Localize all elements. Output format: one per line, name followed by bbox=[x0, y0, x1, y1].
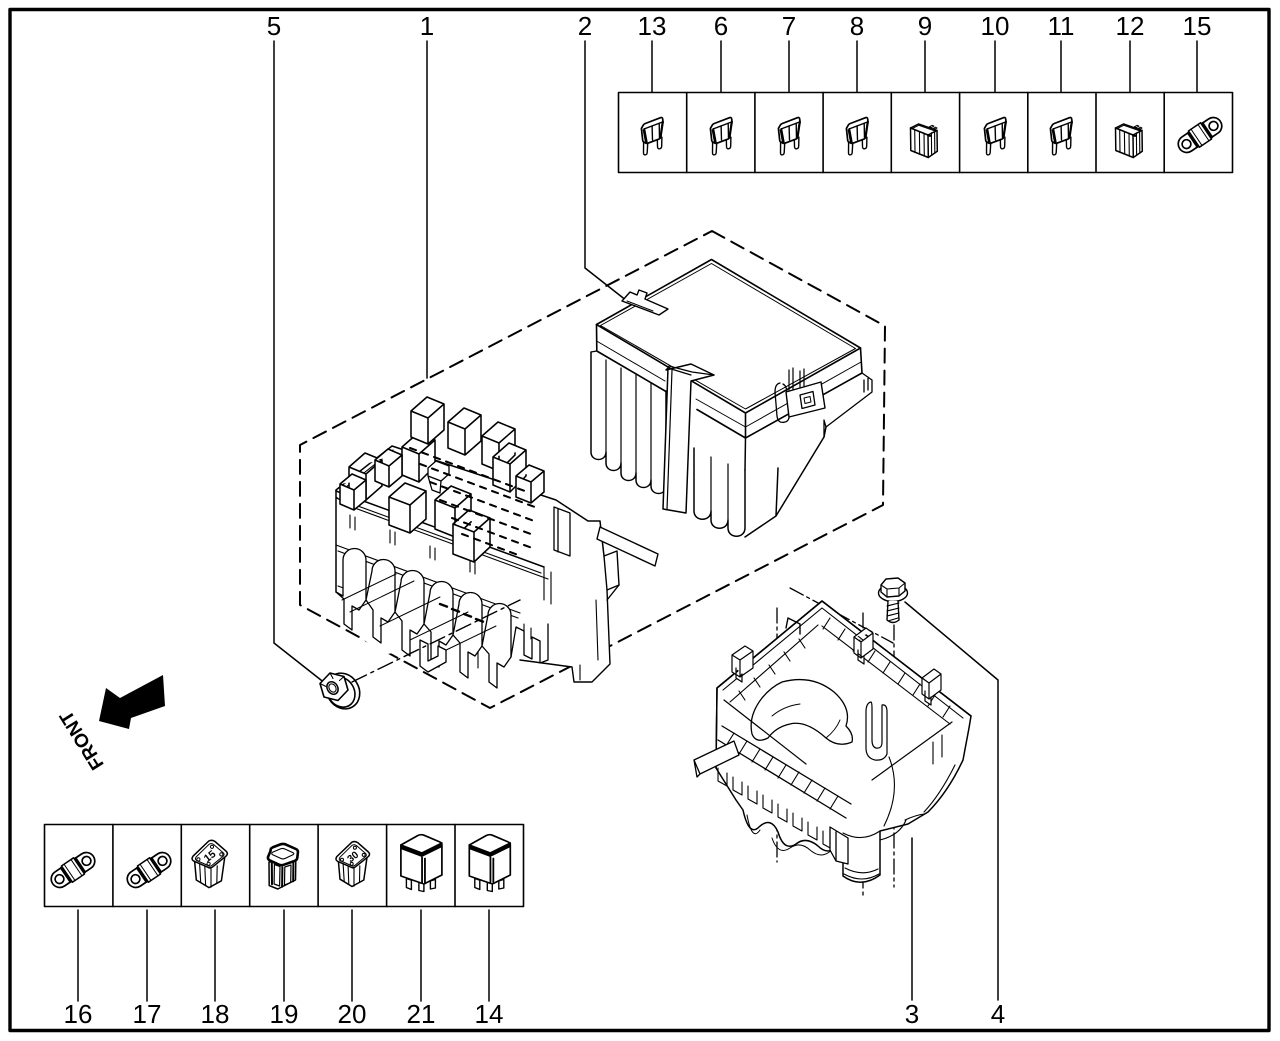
svg-text:3: 3 bbox=[905, 999, 919, 1029]
svg-text:18: 18 bbox=[201, 999, 230, 1029]
svg-text:9: 9 bbox=[918, 11, 932, 41]
svg-text:6: 6 bbox=[714, 11, 728, 41]
svg-text:19: 19 bbox=[270, 999, 299, 1029]
svg-text:5: 5 bbox=[267, 11, 281, 41]
svg-text:21: 21 bbox=[407, 999, 436, 1029]
svg-text:11: 11 bbox=[1048, 11, 1075, 41]
svg-text:7: 7 bbox=[782, 11, 796, 41]
svg-text:1: 1 bbox=[420, 11, 434, 41]
svg-text:17: 17 bbox=[133, 999, 162, 1029]
svg-text:15: 15 bbox=[1183, 11, 1212, 41]
svg-text:2: 2 bbox=[578, 11, 592, 41]
svg-text:4: 4 bbox=[991, 999, 1005, 1029]
svg-text:16: 16 bbox=[64, 999, 93, 1029]
svg-text:8: 8 bbox=[850, 11, 864, 41]
svg-text:13: 13 bbox=[638, 11, 667, 41]
svg-text:20: 20 bbox=[338, 999, 367, 1029]
svg-text:14: 14 bbox=[475, 999, 504, 1029]
svg-text:10: 10 bbox=[981, 11, 1010, 41]
svg-text:12: 12 bbox=[1116, 11, 1145, 41]
